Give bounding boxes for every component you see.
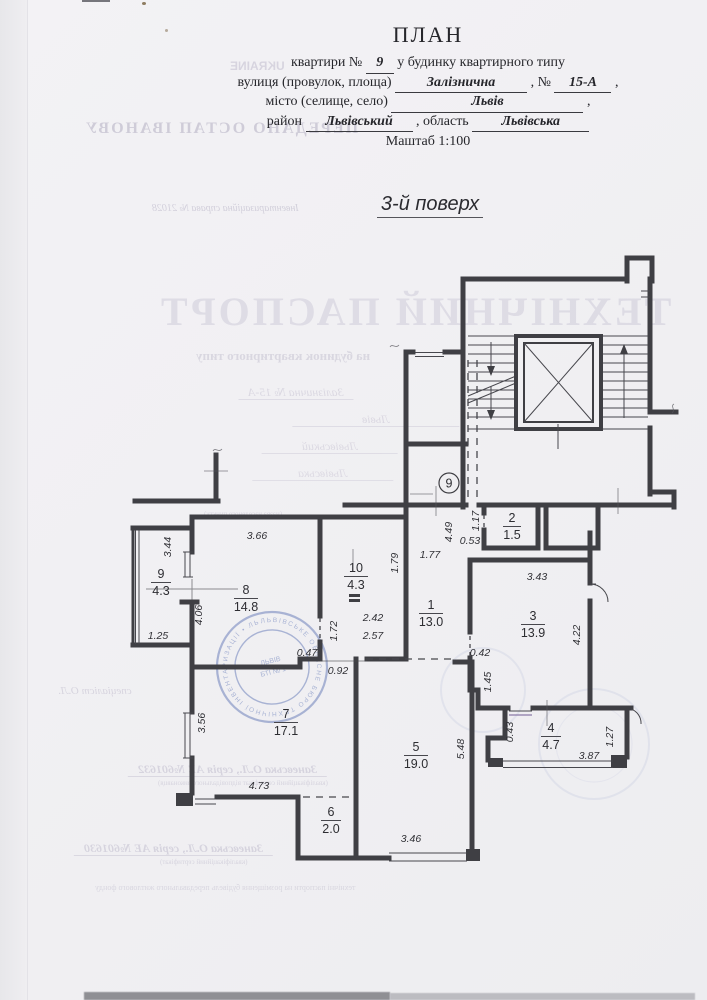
svg-text:3: 3	[530, 609, 537, 623]
room-label-9: 94.3	[151, 567, 171, 598]
header-line-street: вулиця (провулок, площа) Залізнична , № …	[150, 74, 706, 94]
room-label-4: 44.7	[541, 721, 561, 752]
scan-speck	[165, 29, 168, 32]
svg-text:0.42: 0.42	[470, 647, 491, 659]
city-value: Львів	[391, 93, 583, 113]
header-line-city: місто (селище, село) Львів ,	[150, 93, 706, 113]
street-value: Залізнична	[395, 74, 527, 94]
svg-text:4.3: 4.3	[347, 578, 364, 592]
svg-text:5.48: 5.48	[455, 739, 467, 760]
svg-text:4.3: 4.3	[152, 584, 169, 598]
svg-text:0.92: 0.92	[328, 665, 349, 677]
svg-text:19.0: 19.0	[404, 757, 428, 771]
svg-text:7: 7	[283, 707, 290, 721]
svg-text:0.53: 0.53	[460, 535, 481, 547]
svg-text:2.42: 2.42	[362, 612, 384, 624]
staircase	[468, 291, 650, 449]
svg-text:3.56: 3.56	[196, 713, 208, 734]
page-title: ПЛАН	[150, 22, 706, 48]
floor-heading: 3-й поверх	[330, 193, 530, 216]
svg-text:3.66: 3.66	[247, 530, 268, 542]
apartment-number-value: 9	[366, 54, 394, 74]
svg-text:2.57: 2.57	[362, 630, 385, 642]
svg-text:3.46: 3.46	[401, 833, 422, 845]
floor-plan: ЛЬВІВСЬКЕ ОБЛАСНЕ БЮРО ТЕХНІЧНОЇ ІНВЕНТА…	[0, 0, 707, 1000]
svg-text:1: 1	[428, 598, 435, 612]
elevator-shaft	[516, 336, 601, 449]
svg-text:4.49: 4.49	[443, 522, 455, 543]
svg-text:1.77: 1.77	[420, 549, 442, 561]
dimension-ticks	[204, 471, 618, 726]
scan-edge-top	[82, 0, 110, 2]
svg-text:4: 4	[548, 721, 555, 735]
room-label-5: 519.0	[404, 740, 428, 771]
svg-text:2.0: 2.0	[322, 822, 339, 836]
svg-text:0.43: 0.43	[504, 722, 516, 743]
header-line-district: район Львівський , область Львівська	[150, 113, 706, 133]
scan-edge-bottom-dark	[84, 992, 390, 1000]
scan-edge-bottom-light	[390, 993, 695, 1000]
street-number-value: 15-А	[554, 74, 611, 94]
svg-text:1.25: 1.25	[148, 630, 169, 642]
svg-text:3.43: 3.43	[527, 571, 548, 583]
svg-text:4.7: 4.7	[542, 738, 559, 752]
room-label-1: 113.0	[419, 598, 443, 629]
room-label-2: 21.5	[503, 511, 521, 542]
svg-text:3.87: 3.87	[579, 750, 601, 762]
svg-text:6: 6	[328, 805, 335, 819]
svg-text:4.22: 4.22	[571, 625, 583, 646]
svg-text:0.47: 0.47	[297, 647, 319, 659]
room-label-10: 104.3	[344, 561, 368, 592]
room-label-3: 313.9	[521, 609, 545, 640]
svg-text:5: 5	[413, 740, 420, 754]
svg-text:14.8: 14.8	[234, 600, 258, 614]
svg-text:1.79: 1.79	[389, 553, 401, 574]
svg-text:9: 9	[158, 567, 165, 581]
scale-label: Маштаб 1:100	[150, 134, 706, 150]
stairwell-walls	[213, 258, 676, 507]
svg-text:1.27: 1.27	[604, 726, 616, 748]
region-value: Львівська	[472, 113, 589, 133]
scanned-plan-page: { "header": { "title": "ПЛАН", "line1_pr…	[0, 0, 707, 1000]
scan-speck	[142, 2, 146, 5]
svg-text:2: 2	[509, 511, 516, 525]
svg-text:1.45: 1.45	[482, 672, 494, 693]
svg-text:13.9: 13.9	[521, 626, 545, 640]
svg-text:1.5: 1.5	[503, 528, 520, 542]
svg-text:9: 9	[446, 477, 453, 491]
header-line-apartment: квартири № 9 у будинку квартирного типу	[150, 54, 706, 74]
document-header: ПЛАН квартири № 9 у будинку квартирного …	[150, 22, 706, 150]
svg-text:4.06: 4.06	[193, 605, 205, 626]
district-value: Львівський	[306, 113, 413, 133]
svg-text:1.72: 1.72	[328, 621, 340, 642]
svg-text:1.17: 1.17	[470, 510, 482, 532]
room-label-8: 814.8	[234, 583, 258, 614]
room-label-6: 62.0	[321, 805, 341, 836]
apartment-number-badge: 9	[439, 473, 459, 493]
svg-text:3.44: 3.44	[162, 537, 174, 558]
svg-text:13.0: 13.0	[419, 615, 443, 629]
svg-text:4.73: 4.73	[249, 780, 270, 792]
svg-text:8: 8	[243, 583, 250, 597]
svg-text:17.1: 17.1	[274, 724, 298, 738]
svg-text:10: 10	[349, 561, 363, 575]
